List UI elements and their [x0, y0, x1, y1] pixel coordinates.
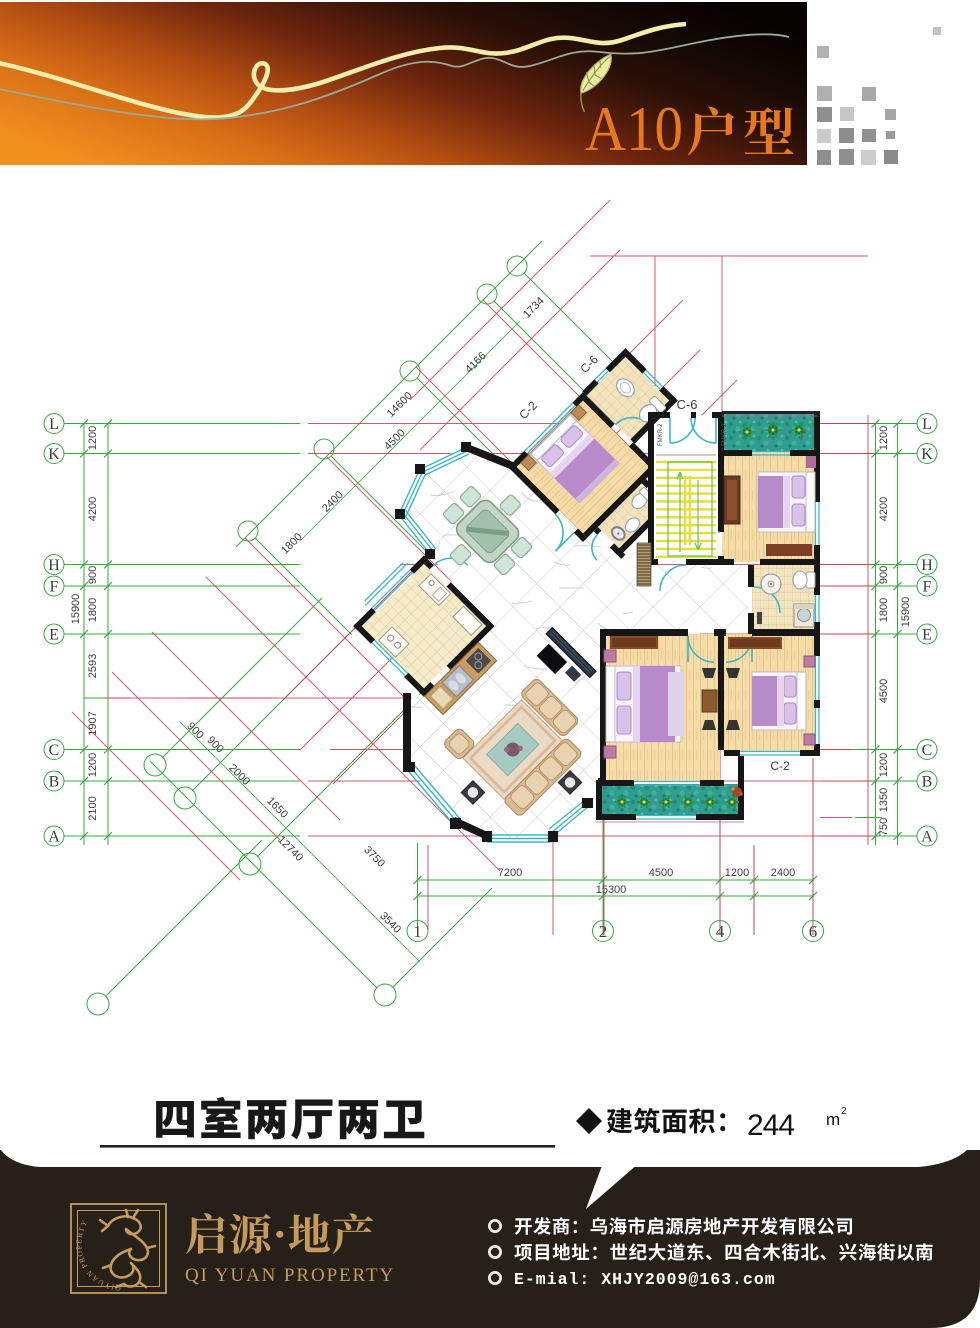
svg-text:2: 2 — [599, 922, 608, 941]
svg-text:4500: 4500 — [878, 679, 890, 703]
svg-text:K: K — [921, 446, 933, 463]
svg-text:1800: 1800 — [87, 598, 99, 622]
svg-text:E: E — [922, 627, 932, 644]
svg-text:15300: 15300 — [596, 884, 627, 896]
svg-text:A10: A10 — [585, 93, 683, 164]
svg-text:H: H — [921, 557, 933, 574]
svg-text:1907: 1907 — [87, 711, 99, 735]
svg-text:C-6: C-6 — [677, 397, 698, 412]
svg-text:1200: 1200 — [87, 753, 99, 777]
svg-text:FMKR-2: FMKR-2 — [658, 423, 664, 446]
svg-text:F: F — [50, 579, 59, 596]
svg-text:750: 750 — [878, 818, 890, 836]
svg-text:1800: 1800 — [878, 598, 890, 622]
svg-text:4500: 4500 — [649, 867, 673, 879]
svg-text:A: A — [48, 829, 60, 846]
svg-text:7200: 7200 — [498, 867, 522, 879]
svg-text:900: 900 — [87, 566, 99, 584]
svg-text:244: 244 — [747, 1109, 794, 1142]
svg-text:QI YUAN PROPERTY: QI YUAN PROPERTY — [185, 1265, 395, 1286]
svg-text:C-2: C-2 — [770, 759, 790, 773]
svg-text:K: K — [48, 446, 60, 463]
svg-text:1: 1 — [413, 922, 422, 941]
svg-text:2: 2 — [841, 1106, 847, 1117]
svg-text:L: L — [49, 416, 59, 433]
svg-text:E: E — [49, 627, 59, 644]
svg-text:C: C — [922, 742, 933, 759]
svg-text:1200: 1200 — [87, 426, 99, 450]
svg-text:15900: 15900 — [900, 597, 912, 628]
svg-text:B: B — [49, 774, 60, 791]
svg-text:2593: 2593 — [87, 654, 99, 678]
svg-text:1200: 1200 — [725, 867, 749, 879]
svg-text:15900: 15900 — [70, 594, 82, 625]
svg-text:m: m — [826, 1110, 840, 1129]
svg-text:900: 900 — [878, 566, 890, 584]
svg-text:E-mial: XHJY2009@163.com: E-mial: XHJY2009@163.com — [514, 1270, 776, 1289]
svg-text:FMKR-2: FMKR-2 — [722, 423, 728, 446]
svg-text:1200: 1200 — [878, 426, 890, 450]
svg-text:2400: 2400 — [771, 867, 795, 879]
svg-text:1200: 1200 — [878, 753, 890, 777]
svg-text:H: H — [48, 557, 60, 574]
svg-text:4200: 4200 — [878, 497, 890, 521]
svg-text:4200: 4200 — [87, 497, 99, 521]
svg-text:C: C — [49, 742, 60, 759]
svg-text:A: A — [921, 829, 933, 846]
svg-text:F: F — [923, 579, 932, 596]
svg-text:B: B — [922, 774, 933, 791]
svg-text:1350: 1350 — [878, 788, 890, 812]
svg-text:2100: 2100 — [87, 796, 99, 820]
svg-text:L: L — [922, 416, 932, 433]
